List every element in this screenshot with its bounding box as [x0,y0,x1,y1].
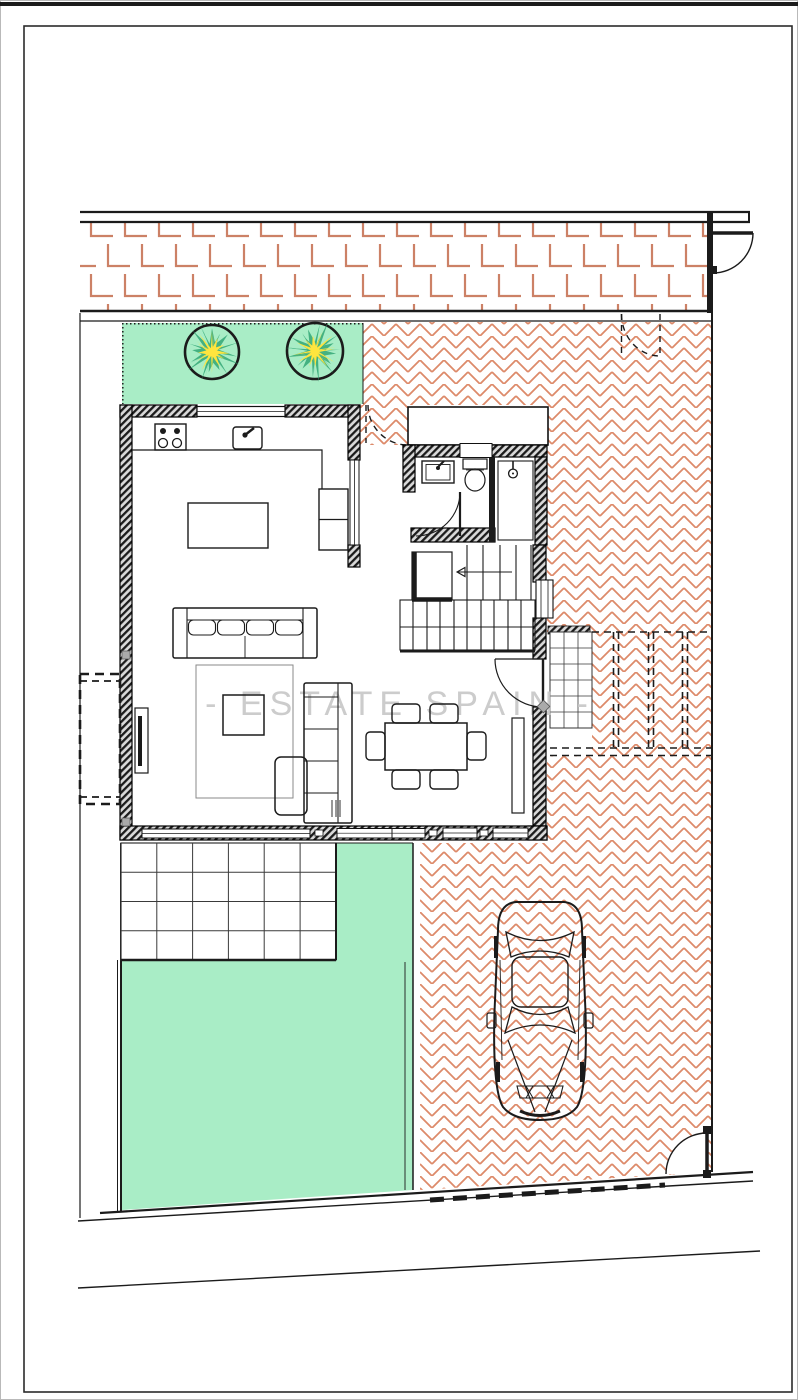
floor-plan-drawing: - ESTATE SPAIN - [0,0,798,1400]
bath-divider-wall [489,457,495,542]
south-fence-panels [430,1185,665,1200]
east-wall-3 [533,707,546,826]
wall-joint-mark [122,651,130,659]
planter-box [80,674,120,804]
paving-north [363,322,712,405]
kitchen-east-wall [348,405,360,460]
terrace-tile-grid [121,843,336,960]
west-wall [120,405,132,840]
paving-porch-west [360,405,408,445]
stair-window-east [536,580,553,618]
corridor-window-east [350,460,359,545]
kitchen-east-wall-stub [348,545,360,567]
front-lawn [122,323,363,404]
pedestrian-gate-north-east [709,233,753,274]
back-garden [118,843,414,1213]
east-wall-1 [533,545,546,582]
paving-porch-east [548,405,712,445]
street-pavement [80,212,750,313]
bath-east-wall [535,457,547,545]
entry-porch [408,407,548,445]
bath-west-wall [403,445,415,492]
paving-east-strip [547,445,712,632]
wall-joint-mark [122,818,130,826]
bath-north-wall-east [492,445,547,457]
bath-door-north [460,444,492,458]
kitchen-window-north [197,407,285,417]
pavement-end-wall [707,212,713,313]
street-curb-line [78,1251,760,1288]
brick-hatch [80,222,712,311]
paving-carport [592,632,712,756]
floor-plan-page: - ESTATE SPAIN - [0,0,798,1400]
front-garden [122,323,363,404]
